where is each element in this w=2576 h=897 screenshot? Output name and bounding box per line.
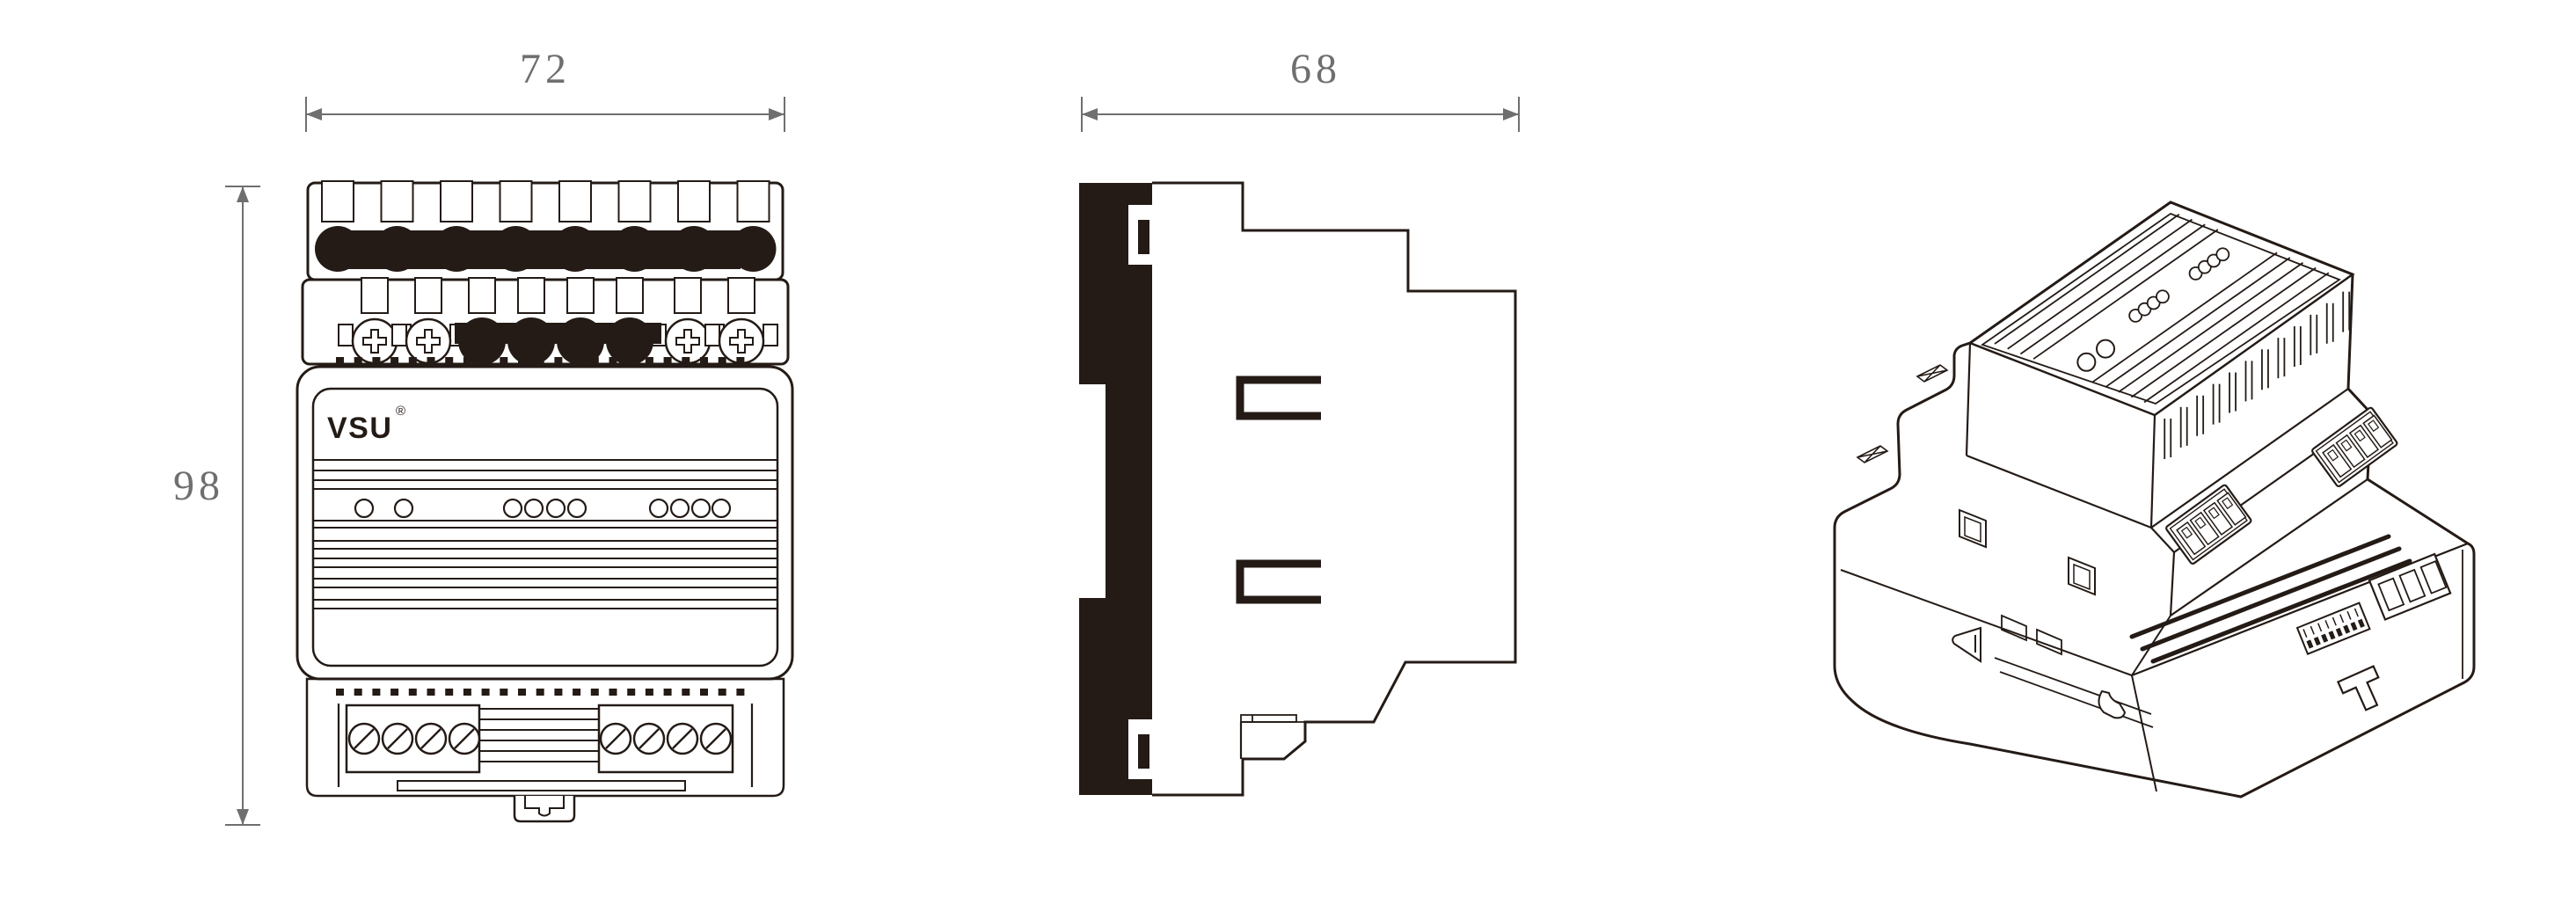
side-view: 68: [1079, 46, 1519, 795]
dimension-depth: 68: [1082, 46, 1519, 132]
terminal-slot: [675, 278, 701, 313]
arrowhead-icon: [1082, 108, 1098, 120]
dash: [736, 689, 744, 696]
dash: [427, 357, 435, 364]
dash: [409, 689, 417, 696]
dash: [573, 357, 580, 364]
dash: [700, 357, 708, 364]
led-hole: [671, 500, 689, 517]
terminal-slot: [518, 278, 544, 313]
dash: [445, 689, 453, 696]
technical-drawing: 72 98: [0, 0, 2576, 897]
top-hole-small: [2156, 290, 2169, 303]
top-hole-large: [2097, 340, 2114, 358]
screw-wing: [763, 325, 777, 346]
dashed-separator-top: [336, 357, 744, 364]
dash: [682, 357, 690, 364]
terminal-slot: [469, 278, 495, 313]
terminal-slot: [617, 278, 643, 313]
terminal-bar: [455, 323, 661, 344]
arrowhead-icon: [769, 108, 784, 120]
bracket-upper: [1240, 380, 1321, 416]
top-hole-large: [2077, 354, 2095, 371]
dash: [463, 689, 471, 696]
iso-silhouette: [1835, 202, 2474, 797]
dash: [354, 689, 362, 696]
dash: [627, 689, 635, 696]
terminal-slot: [567, 278, 594, 313]
dash: [609, 357, 617, 364]
dash: [354, 357, 362, 364]
dash: [336, 689, 344, 696]
terminal-slot: [500, 181, 532, 222]
dimension-width-label: 72: [520, 46, 571, 92]
led-hole: [712, 500, 730, 517]
dash: [518, 357, 526, 364]
dimension-width: 72: [306, 46, 784, 132]
dash: [591, 689, 599, 696]
terminal-slot: [361, 278, 388, 313]
dash: [554, 357, 562, 364]
top-hole-small: [2216, 248, 2229, 260]
terminal-slot: [441, 181, 472, 222]
led-hole: [692, 500, 710, 517]
dash: [736, 357, 744, 364]
dash: [591, 357, 599, 364]
screw-wing: [705, 325, 719, 346]
dimension-height-label: 98: [173, 463, 224, 509]
bracket-lower: [1240, 564, 1321, 600]
dash: [390, 357, 398, 364]
dash: [336, 357, 344, 364]
led-hole: [395, 500, 412, 517]
led-hole: [547, 500, 565, 517]
arrowhead-icon: [306, 108, 322, 120]
dash: [463, 357, 471, 364]
dash: [646, 357, 653, 364]
terminal-slot: [738, 181, 770, 222]
dash: [409, 357, 417, 364]
front-view: 72 98: [173, 46, 792, 825]
dashed-separator-bottom: [336, 689, 744, 696]
arrowhead-icon: [237, 186, 249, 202]
led-hole: [650, 500, 668, 517]
dash: [646, 689, 653, 696]
dash: [445, 357, 453, 364]
dash: [700, 689, 708, 696]
led-hole: [504, 500, 522, 517]
terminal-slot: [382, 181, 413, 222]
dash: [682, 689, 690, 696]
dash: [427, 689, 435, 696]
terminal-slot: [728, 278, 755, 313]
screw-wing: [339, 325, 353, 346]
led-hole: [525, 500, 543, 517]
dash: [554, 689, 562, 696]
dimension-height: 98: [173, 186, 260, 825]
dash: [609, 689, 617, 696]
din-clip-tab: [514, 796, 574, 821]
dash: [482, 689, 490, 696]
strip-pin-bottom: [1138, 734, 1149, 769]
dash: [627, 357, 635, 364]
side-din-clip: [1241, 715, 1305, 759]
dash: [390, 689, 398, 696]
terminal-slot: [678, 181, 710, 222]
dash: [482, 357, 490, 364]
terminal-slot: [322, 181, 354, 222]
registered-mark: ®: [396, 404, 405, 419]
dash: [536, 357, 544, 364]
terminal-bar: [327, 230, 741, 269]
terminal-slot: [559, 181, 591, 222]
strip-pin-top: [1138, 220, 1149, 254]
brand-logo: VSU: [327, 412, 392, 445]
isometric-view: [1835, 202, 2474, 797]
drawing-canvas: 72 98: [0, 0, 2576, 897]
led-hole: [355, 500, 373, 517]
dash: [664, 689, 672, 696]
dimension-depth-label: 68: [1290, 46, 1341, 92]
dash: [500, 689, 507, 696]
screw-wing: [392, 325, 406, 346]
body-profile: [1152, 183, 1515, 795]
terminal-slot: [415, 278, 441, 313]
dash: [536, 689, 544, 696]
mounting-strip: [1079, 183, 1152, 795]
dash: [719, 689, 726, 696]
dash: [372, 689, 380, 696]
led-hole: [568, 500, 586, 517]
dash: [500, 357, 507, 364]
strip-bar: [398, 781, 685, 791]
dash: [664, 357, 672, 364]
dash: [518, 689, 526, 696]
arrowhead-icon: [1503, 108, 1519, 120]
dash: [372, 357, 380, 364]
dash: [573, 689, 580, 696]
arrowhead-icon: [237, 809, 249, 825]
dash: [719, 357, 726, 364]
terminal-slot: [619, 181, 651, 222]
